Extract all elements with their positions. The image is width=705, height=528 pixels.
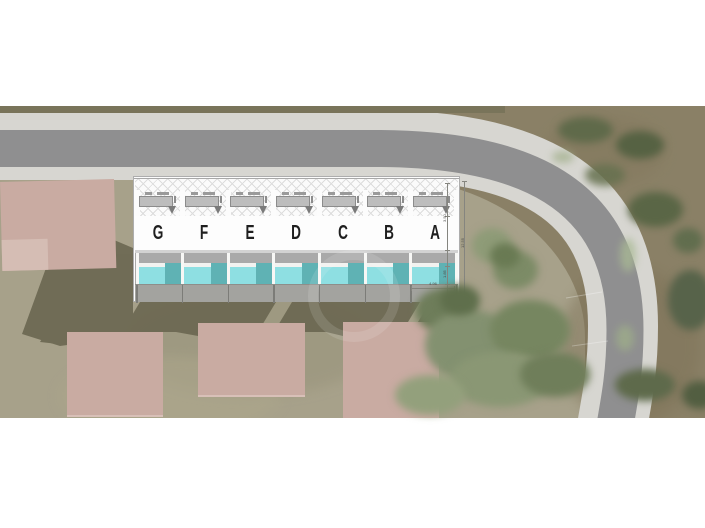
- garden-divider-line: [273, 285, 275, 303]
- tree-dark: [673, 228, 703, 253]
- shrub-on-sidewalk: [620, 238, 636, 272]
- dim-tick: [462, 181, 467, 182]
- unit-letter-G: G: [142, 216, 173, 250]
- photo-watermark: [308, 250, 400, 342]
- entry-arrow-icon: [442, 206, 450, 214]
- dim-tick: [411, 286, 412, 291]
- dim-text-seg-lower: 1.85: [443, 270, 447, 278]
- pergola-slat: [248, 192, 260, 195]
- entry-arrow-icon: [168, 206, 176, 214]
- garden-divider-line: [182, 285, 184, 303]
- pergola-slat: [145, 192, 152, 195]
- carport-post: [220, 196, 222, 203]
- entry-arrow-icon: [305, 206, 313, 214]
- pergola-slat: [282, 192, 289, 195]
- shrub-on-sidewalk: [616, 325, 634, 351]
- pergola-slat: [328, 192, 335, 195]
- site-plan-page: GFEDCBA 3.50 1.85 12.55 4.96: [0, 0, 705, 528]
- pergola-slat: [203, 192, 215, 195]
- tree-sage: [440, 285, 480, 315]
- pool: [139, 263, 182, 284]
- garden-strip: [135, 284, 458, 302]
- carport-post: [311, 196, 313, 203]
- dim-tick: [445, 250, 450, 251]
- carport-post: [174, 196, 176, 203]
- pool-water: [139, 267, 165, 284]
- shrub-on-sidewalk: [552, 151, 574, 163]
- pergola-slat: [419, 192, 426, 195]
- pergola-slat: [191, 192, 198, 195]
- dim-text-width: 4.96: [411, 282, 455, 286]
- building-shadow: [176, 323, 198, 336]
- pool-water: [184, 267, 210, 284]
- pool-water-shaded: [165, 263, 181, 284]
- pool: [230, 263, 273, 284]
- dim-tick: [445, 266, 450, 267]
- pool-water-shaded: [211, 263, 227, 284]
- pool-water-shaded: [256, 263, 272, 284]
- terrace-divider-wall: [455, 253, 458, 284]
- terrace-band: [135, 253, 458, 284]
- garden-divider-line: [228, 285, 230, 303]
- roof-gap: [454, 190, 458, 216]
- pergola-slat: [236, 192, 243, 195]
- pool: [184, 263, 227, 284]
- entry-arrow-icon: [396, 206, 404, 214]
- tree-sage: [395, 375, 465, 415]
- unit-letter-F: F: [189, 216, 220, 250]
- neighbor-building-west: [0, 179, 116, 271]
- unit-letter-D: D: [281, 216, 312, 250]
- neighbor-building-south-2: [198, 323, 305, 397]
- tree-dark: [616, 131, 664, 159]
- unit-letter-C: C: [327, 216, 358, 250]
- tree-sage: [490, 243, 520, 268]
- tree-dark: [558, 117, 613, 143]
- tree-sage: [520, 352, 590, 397]
- unit-letter-B: B: [373, 216, 404, 250]
- unit-letter-E: E: [235, 216, 266, 250]
- carport-post: [402, 196, 404, 203]
- tree-dark: [615, 369, 675, 401]
- unit-letter-band: GFEDCBA: [135, 216, 458, 250]
- dim-text-height-total: 12.55: [461, 238, 465, 248]
- carport-post: [265, 196, 267, 203]
- carport-post: [357, 196, 359, 203]
- pergola-slat: [431, 192, 443, 195]
- entry-arrow-icon: [214, 206, 222, 214]
- pergola-slat: [385, 192, 397, 195]
- neighbor-building-south-1: [67, 332, 163, 417]
- pergola-slat: [373, 192, 380, 195]
- neighbor-building-west-annex: [2, 239, 49, 271]
- pergola-slat: [157, 192, 169, 195]
- entry-arrow-icon: [351, 206, 359, 214]
- tree-dark: [628, 192, 683, 227]
- carport-roof-band: [135, 179, 458, 216]
- tree-sage: [490, 300, 570, 360]
- garden-divider-line: [136, 285, 138, 303]
- entry-arrow-icon: [259, 206, 267, 214]
- pergola-slat: [294, 192, 306, 195]
- pergola-slat: [340, 192, 352, 195]
- dim-text-seg-upper: 3.50: [443, 214, 447, 222]
- pool-water: [275, 267, 301, 284]
- pool-water: [230, 267, 256, 284]
- dim-tick: [445, 183, 450, 184]
- tree-dark: [668, 270, 705, 330]
- carport-post: [448, 196, 450, 203]
- tree-dark: [585, 164, 625, 186]
